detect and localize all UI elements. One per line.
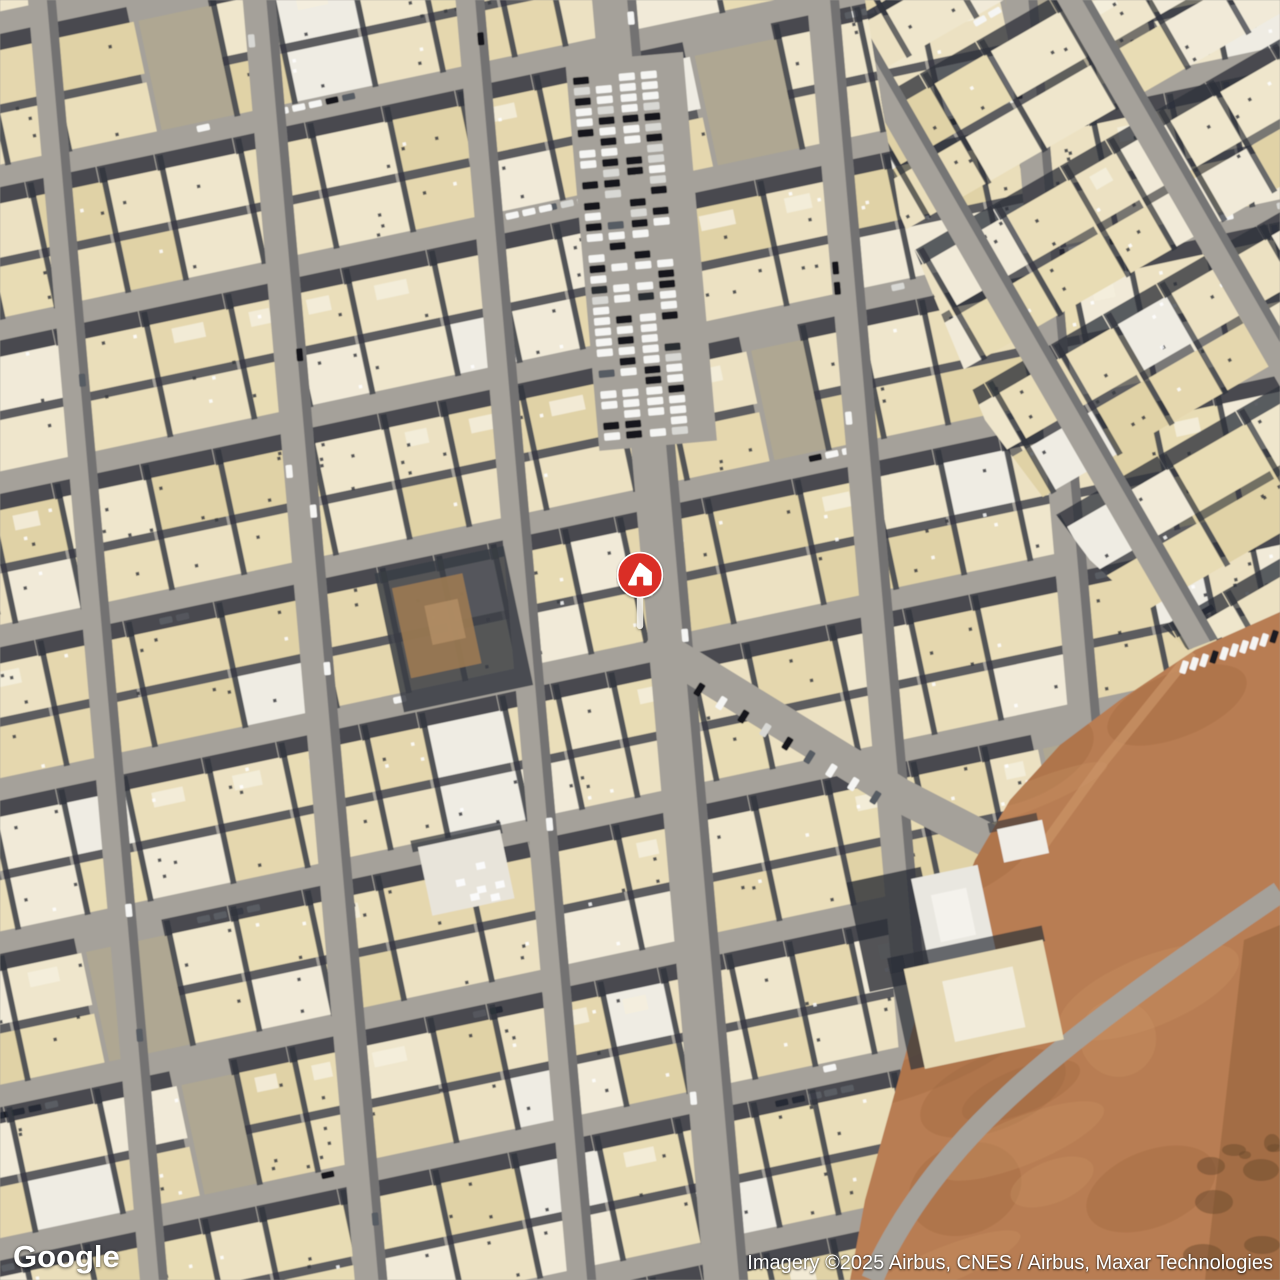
map-attribution: Imagery ©2025 Airbus, CNES / Airbus, Max… — [747, 1252, 1273, 1275]
location-marker-pin[interactable] — [616, 551, 664, 635]
google-logo[interactable]: Google — [13, 1239, 120, 1275]
satellite-map[interactable] — [0, 0, 1280, 1280]
satellite-imagery-layer — [0, 0, 1280, 1280]
marker-stem — [637, 595, 643, 629]
